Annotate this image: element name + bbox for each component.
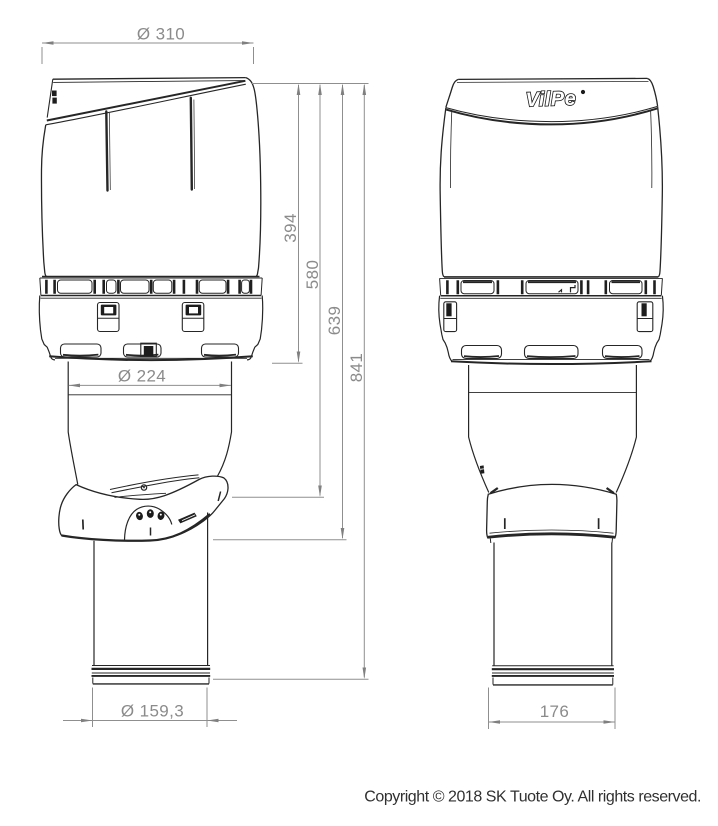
svg-text:841: 841 bbox=[347, 353, 366, 383]
svg-text:639: 639 bbox=[325, 306, 344, 336]
svg-text:176: 176 bbox=[540, 702, 570, 721]
svg-text:580: 580 bbox=[303, 260, 322, 290]
svg-text:Ø 224: Ø 224 bbox=[118, 367, 166, 386]
svg-text:VilPe: VilPe bbox=[525, 88, 576, 112]
svg-text:Copyright © 2018 SK Tuote Oy.: Copyright © 2018 SK Tuote Oy. All rights… bbox=[364, 789, 701, 806]
svg-text:Ø 310: Ø 310 bbox=[137, 25, 185, 44]
svg-text:Ø 159,3: Ø 159,3 bbox=[121, 702, 184, 721]
svg-text:394: 394 bbox=[281, 213, 300, 243]
